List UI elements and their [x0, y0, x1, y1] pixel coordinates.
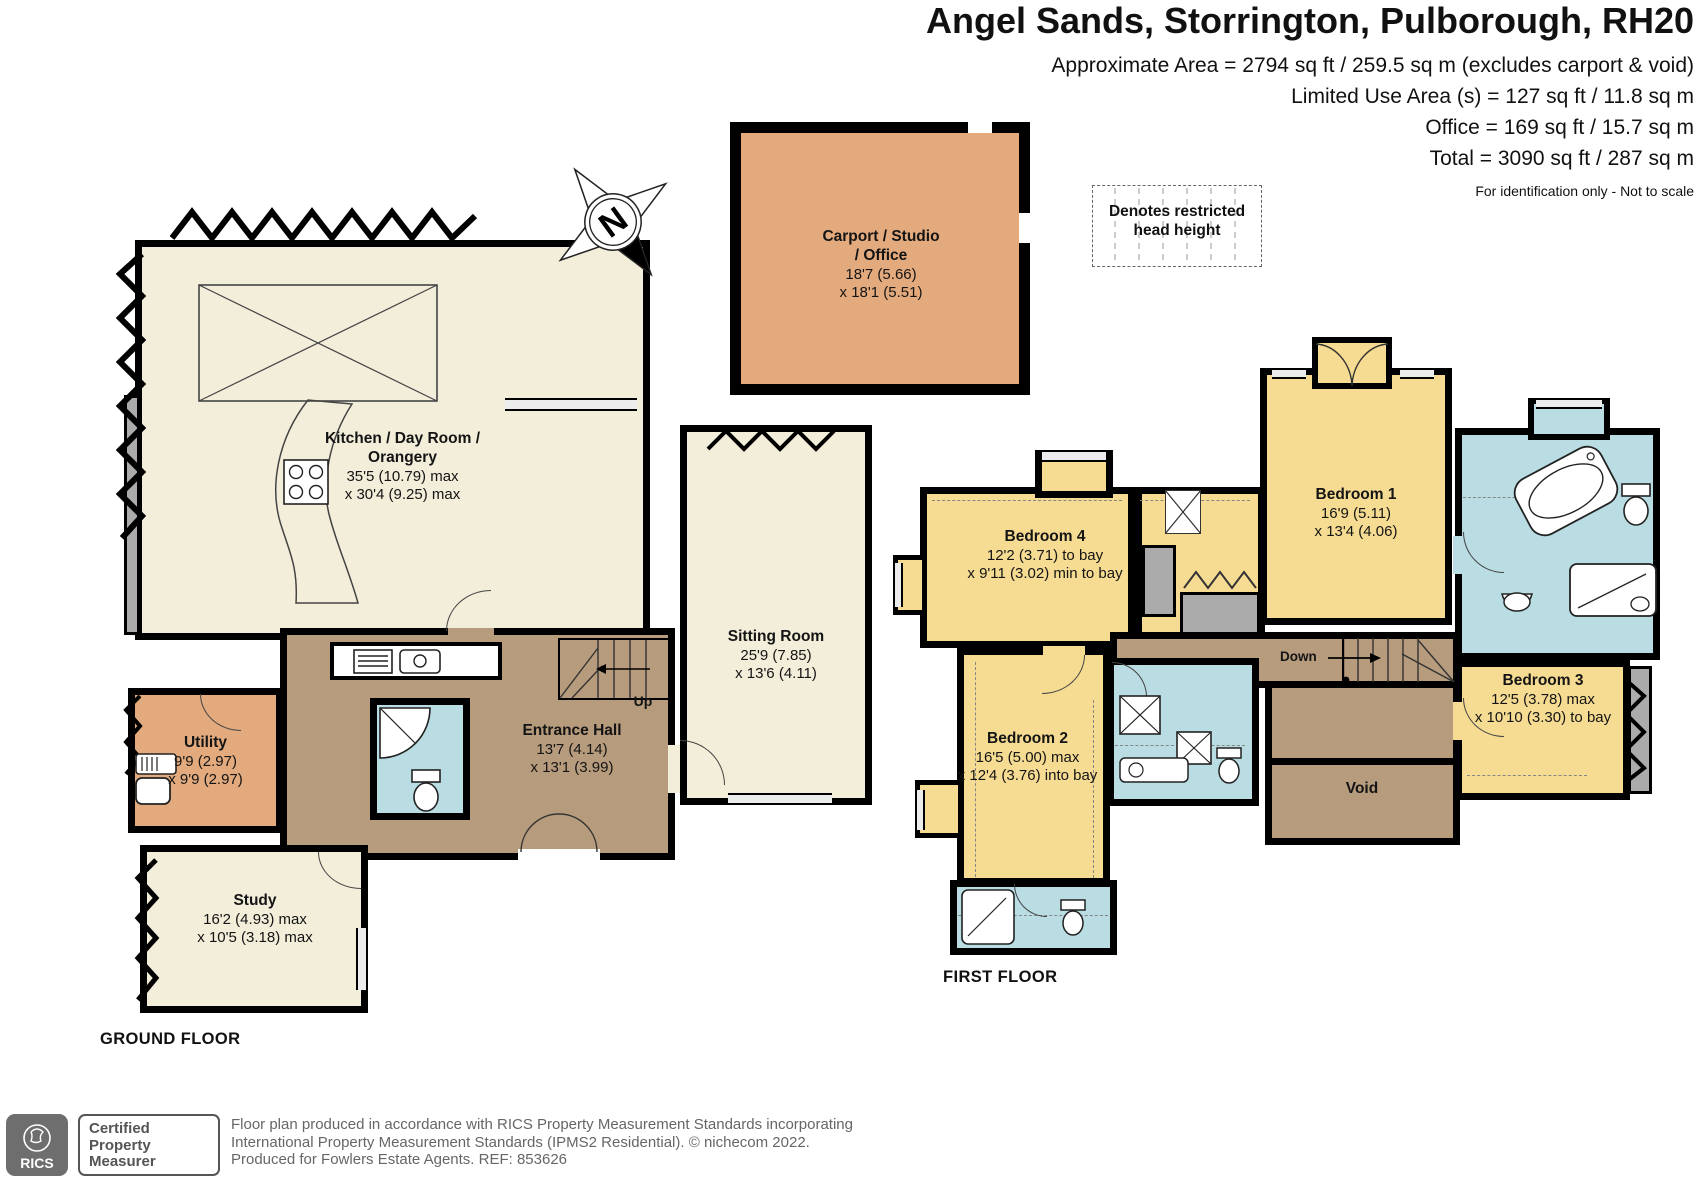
- shower-tray-icon: [960, 888, 1016, 946]
- stairs-down-label: Down: [1280, 649, 1332, 665]
- certified-property-measurer-badge: Certified Property Measurer: [78, 1114, 220, 1176]
- bay-glazing-icon: [114, 252, 146, 542]
- footer-line-2: International Property Measurement Stand…: [231, 1134, 853, 1152]
- hanging-rail-icon: [1182, 568, 1258, 590]
- toilet-icon: [1214, 746, 1244, 786]
- window: [893, 563, 903, 607]
- shower-icon: [1118, 694, 1162, 736]
- toilet-icon: [1058, 898, 1088, 938]
- bedroom-2-label: Bedroom 2 16'5 (5.00) max x 12'4 (3.76) …: [935, 730, 1120, 786]
- legend-label: Denotes restricted head height: [1093, 202, 1261, 241]
- approximate-area: Approximate Area = 2794 sq ft / 259.5 sq…: [1051, 50, 1694, 81]
- void-label: Void: [1282, 780, 1442, 799]
- restricted-head-height-legend: Denotes restricted head height: [1092, 185, 1262, 267]
- landing-lower: [1265, 681, 1460, 765]
- stairs-up-label: Up: [626, 693, 660, 710]
- bedroom-1-label: Bedroom 1 16'9 (5.11) x 13'4 (4.06): [1262, 486, 1450, 542]
- wardrobe: [1142, 545, 1176, 617]
- first-floor-label: FIRST FLOOR: [943, 968, 1057, 987]
- restricted-height-line: [1093, 700, 1094, 878]
- window: [1042, 450, 1106, 462]
- wall-opening: [1019, 213, 1030, 243]
- window: [1400, 368, 1434, 379]
- roof-lantern-icon: [198, 284, 438, 402]
- rics-lion-icon: RICS: [6, 1114, 68, 1176]
- restricted-height-line: [932, 500, 1122, 501]
- footer-line-1: Floor plan produced in accordance with R…: [231, 1116, 853, 1134]
- down-arrow-icon: [1326, 650, 1384, 666]
- toilet-icon: [1618, 482, 1654, 528]
- restricted-height-line: [1467, 775, 1587, 776]
- toilet-icon: [408, 768, 444, 814]
- appliance-icon: [352, 648, 472, 675]
- shower-icon: [378, 706, 434, 762]
- area-summary: Approximate Area = 2794 sq ft / 259.5 sq…: [1051, 50, 1694, 174]
- office-area: Office = 169 sq ft / 15.7 sq m: [1051, 112, 1694, 143]
- total-area: Total = 3090 sq ft / 287 sq m: [1051, 143, 1694, 174]
- badge-label: Certified Property Measurer: [89, 1121, 184, 1171]
- wall-opening: [968, 122, 992, 133]
- carport-label: Carport / Studio / Office 18'7 (5.66) x …: [821, 228, 941, 302]
- skylight-cross-icon: [1165, 490, 1201, 534]
- bay-glazing-icon: [706, 427, 846, 453]
- study-label: Study 16'2 (4.93) max x 10'5 (3.18) max: [150, 892, 360, 948]
- window: [505, 398, 637, 411]
- window: [728, 793, 832, 805]
- sitting-room-label: Sitting Room 25'9 (7.85) x 13'6 (4.11): [682, 628, 870, 684]
- rics-logo: RICS: [6, 1114, 68, 1176]
- identification-note: For identification only - Not to scale: [1475, 183, 1694, 199]
- void-area: [1265, 758, 1460, 845]
- footer-text: Floor plan produced in accordance with R…: [231, 1116, 853, 1169]
- window: [1272, 368, 1306, 379]
- utility-label: Utility 9'9 (2.97) x 9'9 (2.97): [128, 734, 283, 790]
- sink-icon: [1500, 592, 1534, 618]
- double-door-icon: [519, 810, 599, 854]
- svg-text:RICS: RICS: [20, 1155, 53, 1171]
- bay-glazing-icon: [170, 206, 480, 242]
- shower-tray-icon: [1568, 562, 1658, 618]
- room-sitting-room: [680, 425, 872, 805]
- page-title: Angel Sands, Storrington, Pulborough, RH…: [926, 0, 1694, 42]
- floorplan-page: Angel Sands, Storrington, Pulborough, RH…: [0, 0, 1704, 1184]
- bedroom-3-label: Bedroom 3 12'5 (3.78) max x 10'10 (3.30)…: [1452, 672, 1634, 728]
- bedroom-4-label: Bedroom 4 12'2 (3.71) to bay x 9'11 (3.0…: [950, 528, 1140, 584]
- limited-use-area: Limited Use Area (s) = 127 sq ft / 11.8 …: [1051, 81, 1694, 112]
- staircase-up-icon: [558, 638, 670, 700]
- footer-line-3: Produced for Fowlers Estate Agents. REF:…: [231, 1151, 853, 1169]
- ground-floor-label: GROUND FLOOR: [100, 1030, 240, 1049]
- window: [915, 790, 925, 830]
- kitchen-label: Kitchen / Day Room / Orangery 35'5 (10.7…: [310, 430, 495, 504]
- sink-icon: [1118, 756, 1190, 784]
- window: [1536, 398, 1602, 409]
- french-doors-icon: [1314, 340, 1390, 388]
- compass-north-icon: N: [548, 152, 678, 292]
- entrance-hall-label: Entrance Hall 13'7 (4.14) x 13'1 (3.99): [472, 722, 672, 778]
